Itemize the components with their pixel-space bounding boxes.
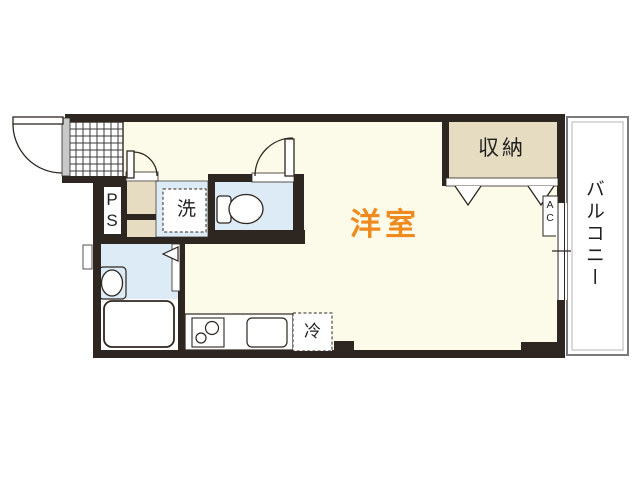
bathroom-window [83, 245, 92, 269]
floor-plan: 洋室 収納 バルコニー PS 洗 冷 AC [0, 0, 640, 480]
main-room-label: 洋室 [350, 207, 420, 243]
wall-service-bottom [93, 237, 305, 244]
toilet-bowl-icon [229, 195, 263, 224]
kitchen-sink-icon [247, 318, 287, 347]
closet-door-track [446, 178, 558, 186]
wall-toilet-left [208, 174, 215, 236]
cabinet-upper [125, 182, 156, 214]
wall-toilet-right [293, 174, 304, 244]
cabinet-divider [125, 214, 156, 220]
toilet-door-leaf [285, 139, 294, 176]
washing-machine-label: 洗 [176, 199, 197, 221]
wall-right-upper [557, 114, 565, 204]
cabinet-lower [125, 220, 156, 237]
entrance-door-jamb [62, 118, 70, 176]
wall-toilet-top [208, 174, 255, 182]
stove-burner-large-icon [206, 322, 219, 335]
wall-corner-bottom-right [521, 342, 565, 358]
air-conditioner-label: AC [544, 199, 556, 225]
entrance-door-arc [13, 124, 62, 173]
wall-toilet-bottom [208, 230, 305, 238]
refrigerator-label: 冷 [303, 322, 322, 342]
bathtub-icon [104, 301, 174, 347]
balcony-label: バルコニー [582, 179, 604, 289]
pipe-space-label: PS [102, 190, 122, 232]
entrance-door-leaf [13, 117, 63, 124]
hall-door-leaf [127, 151, 134, 178]
floor-plan-drawing [0, 0, 640, 480]
washbasin-icon [102, 270, 123, 296]
stove-burner-small-icon [196, 333, 206, 343]
wall-stub-bottom [334, 341, 354, 358]
wall-top [65, 114, 565, 122]
closet-label: 収納 [478, 137, 526, 161]
wall-closet-left [442, 114, 449, 186]
